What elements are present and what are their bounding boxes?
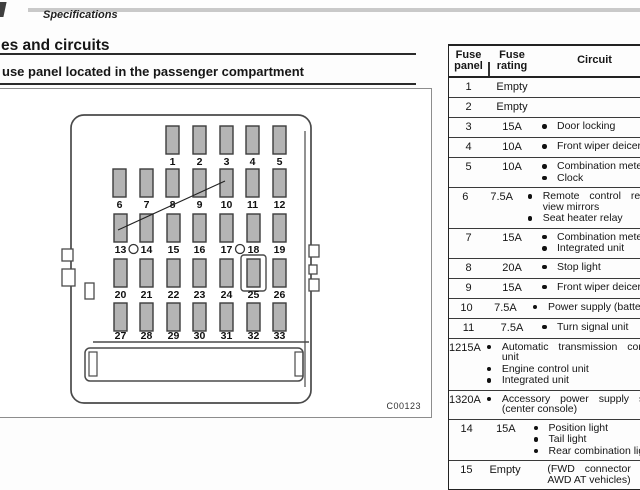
fuse-30	[193, 303, 206, 331]
table-row: 1215AAutomatic transmission controlunitE…	[449, 338, 640, 390]
fuse-label-25: 25	[248, 289, 260, 301]
bullet-dot-icon	[542, 124, 547, 129]
fuse-18	[247, 214, 260, 242]
header-fuse-panel: Fuse panel	[449, 46, 488, 76]
bullet-icon	[542, 232, 557, 243]
chapter-number-fragment	[0, 2, 7, 17]
circuit-item: Front wiper deicer	[542, 282, 640, 293]
header-fuse-rating: Fuse rating	[488, 46, 536, 76]
fuse-panel-number: 9	[449, 282, 488, 294]
bullet-dot-icon	[542, 235, 547, 240]
bullet-icon	[542, 173, 557, 184]
circuit-line: Power supply (battery)	[548, 302, 640, 313]
circuit-cell: Position lightTail lightRear combination…	[534, 423, 640, 457]
fuse-panel-diagram: 1234567891011121314151617181920212223242…	[1, 89, 441, 419]
fuse-rating: 15A	[488, 121, 536, 133]
fuse-29	[167, 303, 180, 331]
circuit-lines: Accessory power supply socket(center con…	[502, 394, 640, 415]
page-top-rule	[28, 8, 640, 12]
circuit-line: Integrated unit	[557, 243, 640, 254]
fuse-table: Fuse panel Fuse rating Circuit 1Empty2Em…	[448, 44, 640, 490]
fuse-panel-number: 11	[449, 322, 488, 334]
circuit-cell: Front wiper deicer	[542, 141, 640, 153]
circuit-item: Combination meter	[542, 161, 640, 172]
fuse-label-26: 26	[274, 289, 286, 301]
bullet-dot-icon	[534, 437, 539, 442]
fuse-panel-number: 12	[449, 342, 461, 386]
fuse-rating: 7.5A	[488, 322, 536, 334]
table-row: 715ACombination meterIntegrated unit	[449, 228, 640, 258]
fuse-rating: 15A	[484, 423, 527, 457]
fuse-6	[113, 169, 126, 197]
fuse-5	[273, 126, 286, 154]
circuit-lines: Turn signal unit	[557, 322, 640, 333]
fuse-label-14: 14	[141, 244, 153, 256]
title-rule	[0, 53, 416, 55]
bullet-dot-icon	[487, 397, 492, 402]
bullet-icon	[542, 282, 557, 293]
circuit-line: Combination meter	[557, 161, 640, 172]
tray-end-slot	[295, 352, 303, 376]
fuse-label-9: 9	[197, 199, 203, 211]
table-row: 410AFront wiper deicer	[449, 137, 640, 157]
panel-tab	[62, 269, 75, 286]
fuse-rating: 7.5A	[482, 191, 522, 224]
bullet-icon	[542, 262, 557, 273]
circuit-item: Turn signal unit	[542, 322, 640, 333]
fuse-20	[114, 259, 127, 287]
fuse-panel-number: 8	[449, 262, 488, 274]
circuit-cell: Stop light	[542, 262, 640, 274]
bullet-icon	[534, 434, 549, 445]
figure-box: 1234567891011121314151617181920212223242…	[0, 88, 432, 418]
circuit-line: Position light	[549, 423, 640, 434]
circuit-lines: Combination meter	[557, 232, 640, 243]
circuit-cell: (FWD connector forAWD AT vehicles)	[532, 464, 640, 485]
bullet-icon	[542, 322, 557, 333]
table-row: 1320AAccessory power supply socket(cente…	[449, 390, 640, 419]
circuit-line: Front wiper deicer	[557, 282, 640, 293]
circuit-line: Clock	[557, 173, 640, 184]
fuse-panel-number: 10	[449, 302, 484, 314]
bullet-icon	[542, 243, 557, 254]
bullet-dot-icon	[542, 246, 547, 251]
bullet-dot-icon	[534, 449, 539, 454]
circuit-cell	[542, 81, 640, 93]
fuse-label-6: 6	[117, 199, 123, 211]
fuse-27	[114, 303, 127, 331]
circuit-cell: Accessory power supply socket(center con…	[487, 394, 640, 415]
fuse-19	[273, 214, 286, 242]
fuse-panel-number: 1	[449, 81, 488, 93]
table-row: 1Empty	[449, 78, 640, 97]
circuit-item: Clock	[542, 173, 640, 184]
fuse-table-body: 1Empty2Empty315ADoor locking410AFront wi…	[449, 78, 640, 489]
bullet-dot-icon	[542, 285, 547, 290]
circuit-cell: Front wiper deicer	[542, 282, 640, 294]
fuse-28	[140, 303, 153, 331]
header-column-divider	[488, 62, 490, 76]
circuit-lines: Integrated unit	[557, 243, 640, 254]
circuit-line: Turn signal unit	[557, 322, 640, 333]
fuse-label-20: 20	[115, 289, 127, 301]
fuse-3	[220, 126, 233, 154]
circuit-item: Tail light	[534, 434, 640, 445]
panel-tab	[62, 249, 73, 261]
fuse-rating: Empty	[488, 81, 536, 93]
table-row: 15Empty(FWD connector forAWD AT vehicles…	[449, 460, 640, 489]
fuse-33	[273, 303, 286, 331]
fuse-label-7: 7	[144, 199, 150, 211]
circuit-cell: Turn signal unit	[542, 322, 640, 334]
table-row: 1415APosition lightTail lightRear combin…	[449, 419, 640, 461]
circuit-item: Rear combination light	[534, 446, 640, 457]
fuse-11	[246, 169, 259, 197]
fuse-panel-number: 13	[449, 394, 461, 415]
circuit-lines: Stop light	[557, 262, 640, 273]
fuse-label-32: 32	[248, 330, 260, 342]
fuse-panel-number: 14	[449, 423, 484, 457]
tray-outline	[85, 348, 303, 381]
bullet-icon	[542, 121, 557, 132]
circuit-lines: Tail light	[549, 434, 640, 445]
bullet-dot-icon	[533, 305, 538, 310]
fuse-16	[193, 214, 206, 242]
fuse-label-27: 27	[115, 330, 127, 342]
fuse-rating: Empty	[488, 101, 536, 113]
bullet-icon	[487, 342, 502, 363]
fuse-label-16: 16	[194, 244, 206, 256]
circuit-item: Door locking	[542, 121, 640, 132]
circuit-item: Engine control unit	[487, 364, 640, 375]
fuse-rating: Empty	[484, 464, 527, 485]
fuse-2	[193, 126, 206, 154]
circuit-item: Power supply (battery)	[533, 302, 640, 313]
fuse-panel-number: 4	[449, 141, 488, 153]
bullet-dot-icon	[487, 345, 492, 350]
fuse-rating: 10A	[488, 161, 536, 183]
circuit-cell: Remote control rear-view mirrorsSeat hea…	[528, 191, 640, 224]
fuse-label-24: 24	[221, 289, 233, 301]
fuse-4	[246, 126, 259, 154]
circuit-note: (FWD connector forAWD AT vehicles)	[532, 464, 640, 485]
fuse-rating: 20A	[488, 262, 536, 274]
circuit-cell	[542, 101, 640, 113]
circuit-line: Seat heater relay	[543, 213, 640, 224]
circuit-cell: Combination meterIntegrated unit	[542, 232, 640, 254]
table-row: 67.5ARemote control rear-view mirrorsSea…	[449, 187, 640, 228]
bullet-icon	[534, 446, 549, 457]
fuse-label-31: 31	[221, 330, 233, 342]
bullet-icon	[534, 423, 549, 434]
fuse-8	[166, 169, 179, 197]
table-row: 820AStop light	[449, 258, 640, 278]
fuse-24	[220, 259, 233, 287]
circuit-lines: (FWD connector forAWD AT vehicles)	[547, 464, 640, 485]
fuse-label-11: 11	[247, 199, 258, 211]
fuse-14	[140, 214, 153, 242]
circuit-item: Integrated unit	[487, 375, 640, 386]
fuse-panel-number: 5	[449, 161, 488, 183]
tray-end-slot	[89, 352, 97, 376]
fuse-15	[167, 214, 180, 242]
circuit-line: Front wiper deicer	[557, 141, 640, 152]
bullet-dot-icon	[528, 194, 533, 199]
bullet-icon	[487, 364, 502, 375]
fuse-rating: 15A	[488, 282, 536, 294]
manual-page: { "page": { "section_label": "Specificat…	[0, 0, 640, 480]
bullet-dot-icon	[487, 367, 492, 372]
circuit-line: Door locking	[557, 121, 640, 132]
circuit-item: Front wiper deicer	[542, 141, 640, 152]
bullet-dot-icon	[528, 216, 533, 221]
fuse-23	[193, 259, 206, 287]
circuit-item: Remote control rear-view mirrors	[528, 191, 640, 212]
bullet-dot-icon	[542, 144, 547, 149]
fuse-13	[114, 214, 127, 242]
fuse-label-29: 29	[168, 330, 180, 342]
bullet-icon	[542, 161, 557, 172]
fuse-32	[247, 303, 260, 331]
circuit-lines: Integrated unit	[502, 375, 640, 386]
circuit-line: Remote control rear-	[543, 191, 640, 202]
circuit-line: Rear combination light	[549, 446, 640, 457]
fuse-label-1: 1	[170, 156, 176, 168]
header-circuit: Circuit	[536, 46, 640, 76]
bullet-dot-icon	[542, 176, 547, 181]
fuse-label-33: 33	[274, 330, 286, 342]
circuit-cell: Automatic transmission controlunitEngine…	[487, 342, 640, 386]
circuit-item: Combination meter	[542, 232, 640, 243]
circuit-cell: Combination meterClock	[542, 161, 640, 183]
circuit-lines: Seat heater relay	[543, 213, 640, 224]
section-label: Specifications	[43, 9, 118, 21]
fuse-rating: 7.5A	[484, 302, 527, 314]
bullet-icon	[528, 213, 543, 224]
fuse-label-13: 13	[115, 244, 127, 256]
circuit-line: (FWD connector for	[547, 464, 640, 475]
table-row: 107.5APower supply (battery)	[449, 298, 640, 318]
subsection-title: use panel located in the passenger compa…	[2, 64, 304, 79]
table-row: 315ADoor locking	[449, 117, 640, 137]
circuit-lines: Power supply (battery)	[548, 302, 640, 313]
circuit-lines: Door locking	[557, 121, 640, 132]
panel-tab	[309, 279, 319, 291]
fuse-rating: 15A	[488, 232, 536, 254]
bullet-spacer	[532, 464, 547, 485]
bullet-dot-icon	[487, 378, 492, 383]
circle-marker-icon	[129, 245, 138, 254]
fuse-17	[220, 214, 233, 242]
circuit-item: Stop light	[542, 262, 640, 273]
fuse-label-2: 2	[197, 156, 203, 168]
bullet-dot-icon	[534, 426, 539, 431]
fuse-label-17: 17	[221, 244, 233, 256]
fuse-panel-number: 2	[449, 101, 488, 113]
circuit-line: Tail light	[549, 434, 640, 445]
table-row: 510ACombination meterClock	[449, 157, 640, 187]
fuse-12	[273, 169, 286, 197]
fuse-label-18: 18	[248, 244, 260, 256]
circuit-line: Combination meter	[557, 232, 640, 243]
fuse-rating: 15A	[461, 342, 481, 386]
circuit-item: Position light	[534, 423, 640, 434]
circuit-item: Integrated unit	[542, 243, 640, 254]
fuse-21	[140, 259, 153, 287]
bullet-dot-icon	[542, 265, 547, 270]
fuse-panel-number: 15	[449, 464, 484, 485]
figure-code: C00123	[386, 401, 421, 411]
fuse-rating: 10A	[488, 141, 536, 153]
fuse-label-28: 28	[141, 330, 153, 342]
circuit-line: (center console)	[502, 404, 640, 415]
bullet-icon	[528, 191, 543, 212]
circuit-cell: Power supply (battery)	[533, 302, 640, 314]
fuse-label-21: 21	[141, 289, 153, 301]
fuse-7	[140, 169, 153, 197]
fuse-panel-number: 7	[449, 232, 488, 254]
circuit-lines: Remote control rear-view mirrors	[543, 191, 640, 212]
fuse-31	[220, 303, 233, 331]
fuse-label-23: 23	[194, 289, 206, 301]
fuse-25	[247, 259, 260, 287]
circuit-lines: Rear combination light	[549, 446, 640, 457]
bullet-icon	[533, 302, 548, 313]
subsection-rule	[0, 83, 416, 85]
circuit-lines: Position light	[549, 423, 640, 434]
circuit-line: Integrated unit	[502, 375, 640, 386]
panel-tab	[85, 283, 94, 299]
circuit-lines: Combination meter	[557, 161, 640, 172]
bullet-icon	[487, 375, 502, 386]
fuse-label-12: 12	[274, 199, 286, 211]
fuse-label-5: 5	[277, 156, 283, 168]
fuse-label-30: 30	[194, 330, 206, 342]
circuit-line: view mirrors	[543, 202, 640, 213]
fuse-panel-number: 3	[449, 121, 488, 133]
circuit-lines: Front wiper deicer	[557, 282, 640, 293]
circuit-lines: Engine control unit	[502, 364, 640, 375]
table-row: 2Empty	[449, 97, 640, 117]
fuse-1	[166, 126, 179, 154]
bullet-icon	[487, 394, 502, 415]
fuse-22	[167, 259, 180, 287]
fuse-label-3: 3	[224, 156, 230, 168]
bullet-icon	[542, 141, 557, 152]
circuit-lines: Automatic transmission controlunit	[502, 342, 640, 363]
circuit-item: Accessory power supply socket(center con…	[487, 394, 640, 415]
circuit-item: Seat heater relay	[528, 213, 640, 224]
circuit-item: Automatic transmission controlunit	[487, 342, 640, 363]
circuit-cell: Door locking	[542, 121, 640, 133]
fuse-table-header: Fuse panel Fuse rating Circuit	[449, 46, 640, 78]
circuit-line: Automatic transmission control	[502, 342, 640, 353]
fuse-26	[273, 259, 286, 287]
table-row: 915AFront wiper deicer	[449, 278, 640, 298]
bullet-dot-icon	[542, 325, 547, 330]
table-row: 117.5ATurn signal unit	[449, 318, 640, 338]
fuse-label-15: 15	[168, 244, 180, 256]
fuse-panel-number: 6	[449, 191, 482, 224]
fuse-label-19: 19	[274, 244, 286, 256]
circuit-lines: Clock	[557, 173, 640, 184]
bullet-dot-icon	[542, 164, 547, 169]
panel-tab	[309, 245, 319, 257]
circuit-line: Engine control unit	[502, 364, 640, 375]
fuse-label-4: 4	[250, 156, 256, 168]
circle-marker-icon	[236, 245, 245, 254]
panel-tab	[309, 265, 317, 274]
fuse-rating: 20A	[461, 394, 481, 415]
circuit-line: Stop light	[557, 262, 640, 273]
circuit-lines: Front wiper deicer	[557, 141, 640, 152]
circuit-line: unit	[502, 352, 640, 363]
fuse-label-10: 10	[221, 199, 233, 211]
fuse-label-22: 22	[168, 289, 180, 301]
